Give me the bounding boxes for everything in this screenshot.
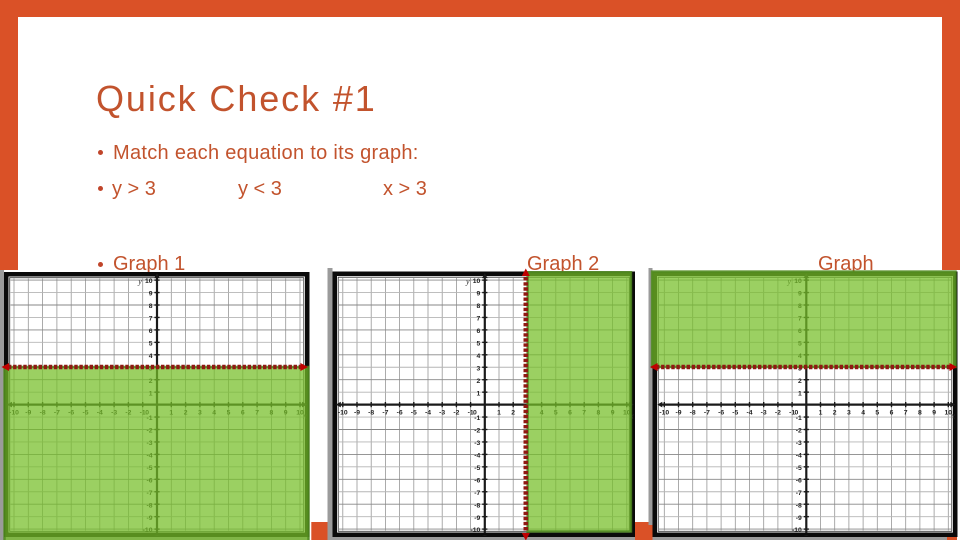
svg-text:-3: -3 (439, 409, 445, 416)
svg-text:9: 9 (932, 409, 936, 416)
svg-text:-4: -4 (796, 453, 802, 460)
svg-text:-9: -9 (474, 515, 480, 522)
svg-text:-8: -8 (690, 409, 696, 416)
svg-text:-5: -5 (732, 409, 738, 416)
svg-text:4: 4 (149, 353, 153, 360)
svg-text:3: 3 (477, 365, 481, 372)
svg-text:-10: -10 (470, 527, 480, 534)
svg-text:2: 2 (477, 378, 481, 385)
svg-text:y: y (137, 277, 142, 286)
svg-text:-6: -6 (397, 409, 403, 416)
svg-text:-10: -10 (338, 409, 348, 416)
svg-text:-7: -7 (704, 409, 710, 416)
svg-text:-2: -2 (796, 428, 802, 435)
svg-text:x: x (951, 412, 956, 421)
svg-text:-7: -7 (382, 409, 388, 416)
svg-text:1: 1 (497, 409, 501, 416)
svg-text:6: 6 (149, 328, 153, 335)
svg-text:7: 7 (149, 316, 153, 323)
svg-text:-10: -10 (792, 527, 802, 534)
svg-text:-8: -8 (796, 502, 802, 509)
svg-text:-8: -8 (474, 502, 480, 509)
svg-text:-7: -7 (474, 490, 480, 497)
svg-text:-8: -8 (368, 409, 374, 416)
svg-text:-3: -3 (474, 440, 480, 447)
svg-text:8: 8 (149, 303, 153, 310)
svg-text:1: 1 (477, 390, 481, 397)
svg-text:8: 8 (477, 303, 481, 310)
svg-text:-3: -3 (796, 440, 802, 447)
svg-text:10: 10 (473, 278, 481, 285)
svg-text:0: 0 (473, 409, 477, 416)
svg-text:2: 2 (798, 378, 802, 385)
svg-text:8: 8 (918, 409, 922, 416)
svg-text:-3: -3 (761, 409, 767, 416)
svg-text:-2: -2 (474, 428, 480, 435)
svg-text:4: 4 (477, 353, 481, 360)
svg-text:-5: -5 (411, 409, 417, 416)
svg-text:-9: -9 (354, 409, 360, 416)
svg-text:-7: -7 (796, 490, 802, 497)
svg-text:-2: -2 (453, 409, 459, 416)
svg-text:6: 6 (477, 328, 481, 335)
svg-text:5: 5 (477, 340, 481, 347)
svg-text:6: 6 (890, 409, 894, 416)
svg-text:4: 4 (861, 409, 865, 416)
svg-text:-10: -10 (659, 409, 669, 416)
svg-text:-5: -5 (796, 465, 802, 472)
svg-text:-9: -9 (796, 515, 802, 522)
svg-text:1: 1 (798, 390, 802, 397)
svg-text:-4: -4 (425, 409, 431, 416)
svg-text:1: 1 (819, 409, 823, 416)
svg-text:2: 2 (511, 409, 515, 416)
svg-text:-5: -5 (474, 465, 480, 472)
svg-text:10: 10 (145, 278, 153, 285)
svg-text:5: 5 (875, 409, 879, 416)
svg-text:-6: -6 (718, 409, 724, 416)
svg-text:5: 5 (149, 340, 153, 347)
svg-text:-2: -2 (775, 409, 781, 416)
svg-text:-6: -6 (474, 477, 480, 484)
svg-text:-4: -4 (746, 409, 752, 416)
svg-text:2: 2 (833, 409, 837, 416)
svg-text:7: 7 (477, 316, 481, 323)
svg-text:9: 9 (477, 291, 481, 298)
svg-text:9: 9 (149, 291, 153, 298)
svg-text:0: 0 (795, 409, 799, 416)
svg-text:-4: -4 (474, 453, 480, 460)
svg-text:y: y (465, 277, 470, 286)
svg-text:3: 3 (847, 409, 851, 416)
svg-text:-9: -9 (675, 409, 681, 416)
svg-text:-6: -6 (796, 477, 802, 484)
svg-text:7: 7 (904, 409, 908, 416)
